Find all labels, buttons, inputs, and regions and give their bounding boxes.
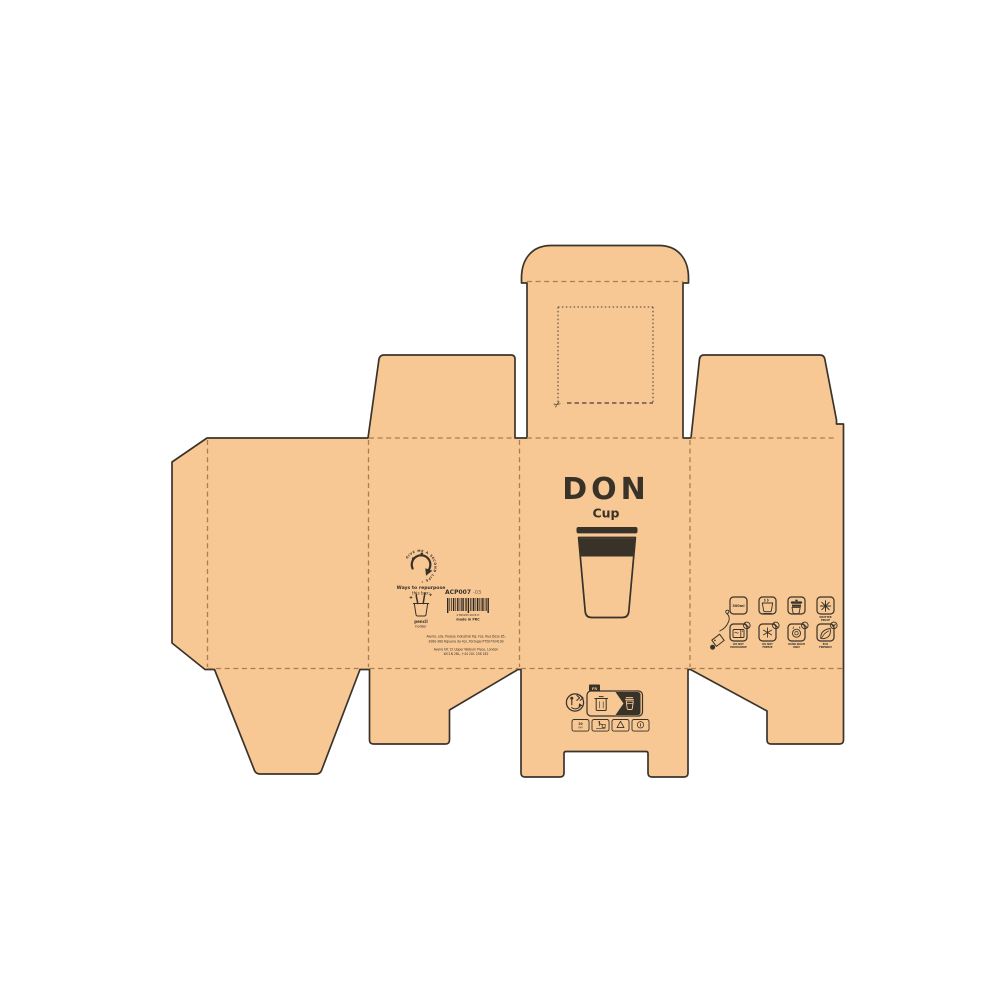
- barcode: [447, 598, 489, 613]
- box-dieline: ✂ GIVE ME A SECOND LIFE • Ways to repurp…: [0, 0, 1000, 1000]
- idea-word-2: holder: [415, 625, 427, 629]
- material-name: PAP: [578, 727, 583, 730]
- sku-revision: -03: [473, 590, 481, 596]
- product-name: Cup: [592, 506, 619, 521]
- svg-text:FRIENDLY: FRIENDLY: [819, 646, 832, 649]
- made-in-label: made in PRC: [456, 617, 480, 621]
- barcode-digits: 4 895265 002317: [456, 613, 479, 617]
- svg-text:FREEZE: FREEZE: [762, 646, 772, 649]
- svg-text:MICROWAVE: MICROWAVE: [730, 646, 747, 649]
- address-line-2: 3080-380 Figueira da Foz, Portugal PT507…: [428, 639, 503, 643]
- dieline-outline: [172, 246, 844, 778]
- address-line-3: Aveiro UK 15 Upper Woburn Place, London: [434, 647, 499, 651]
- row1-caption-line2: PROOF: [821, 619, 831, 622]
- brand-title: DON: [562, 472, 650, 507]
- material-code: 20: [578, 722, 582, 726]
- address-line-4: WC1N 2BL, +44 201 258 182: [444, 652, 489, 656]
- repurpose-subtitle: this box:: [412, 591, 430, 596]
- sku-code: ACP007: [445, 589, 471, 596]
- dieline-canvas: ✂ GIVE ME A SECOND LIFE • Ways to repurp…: [0, 0, 1000, 1000]
- address-line-1: Aveiro, Lda. Parque Industrial Fig. Foz,…: [426, 635, 505, 639]
- idea-word-1: pencil: [414, 619, 428, 624]
- capacity-label: 300ml: [732, 604, 744, 608]
- svg-text:ONLY: ONLY: [793, 646, 800, 649]
